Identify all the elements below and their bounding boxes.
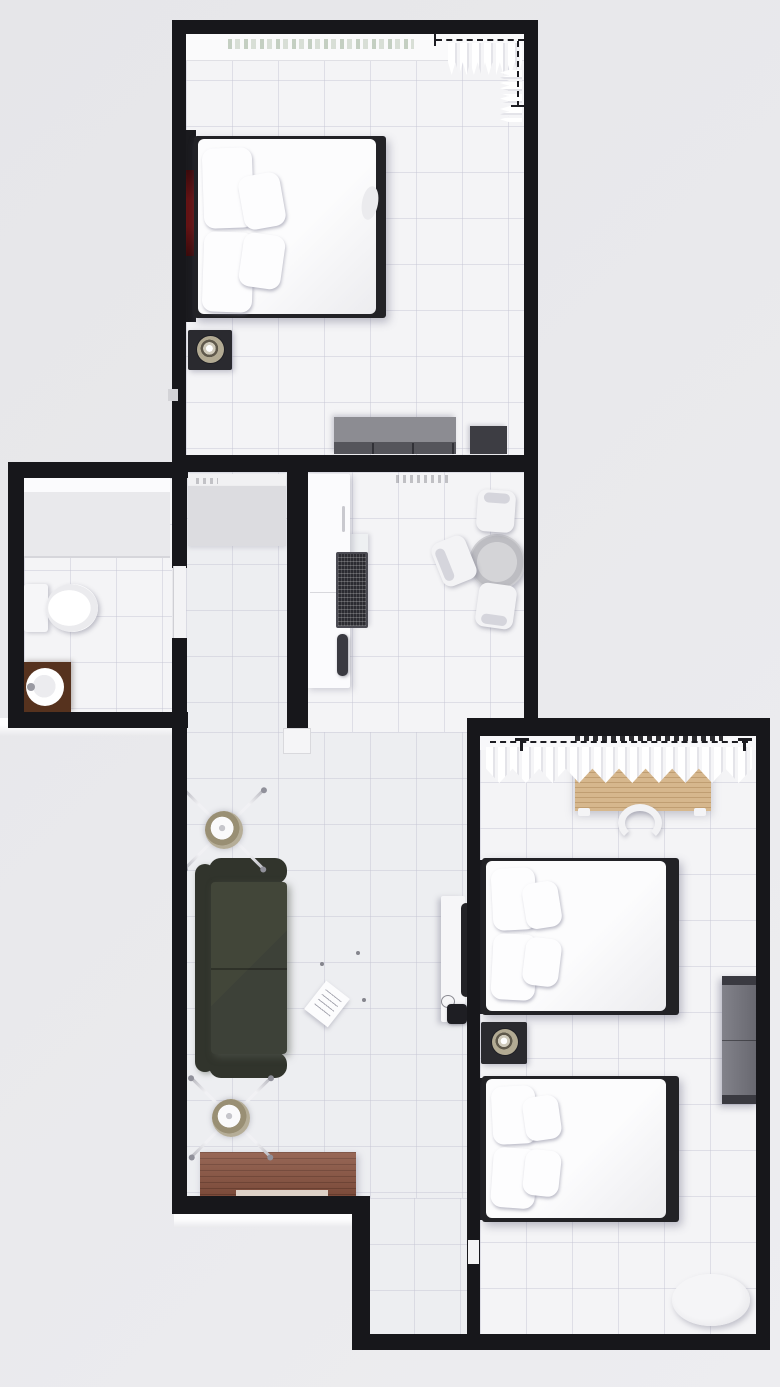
desk-foot — [694, 808, 706, 816]
kettle — [447, 1004, 467, 1024]
shower-shelf — [24, 478, 170, 492]
dining-chair — [476, 489, 517, 534]
wall — [756, 718, 770, 1350]
wall — [172, 20, 186, 472]
wall — [352, 1334, 480, 1350]
wall — [172, 462, 187, 568]
closet-marks — [196, 478, 218, 484]
ceiling-fan — [175, 1062, 287, 1174]
cushion-seam — [211, 968, 287, 970]
wall — [172, 1196, 370, 1214]
rod-end-tick — [434, 33, 436, 46]
rod-bracket — [520, 738, 523, 751]
desk-foot — [578, 808, 590, 816]
sofa — [195, 858, 289, 1078]
wardrobe-cap — [722, 1095, 759, 1104]
window-sill-marks — [228, 39, 414, 49]
pouf — [672, 1274, 750, 1326]
corridor-floor — [368, 1198, 468, 1336]
wall-notch — [168, 389, 178, 401]
floor-speck — [362, 998, 366, 1002]
rod-bracket — [743, 738, 746, 751]
bedroom-door-gap — [468, 1240, 479, 1264]
curtain-rod-dashed-vertical — [517, 41, 519, 107]
pillow — [521, 879, 564, 930]
pillow — [237, 231, 286, 290]
fan-hub — [212, 1099, 250, 1137]
sofa-seat — [211, 882, 287, 1054]
curtain-rod-dashed — [436, 39, 524, 41]
rod-end-tick — [511, 105, 524, 107]
pillow — [237, 171, 288, 231]
bathroom-door — [173, 566, 186, 638]
hallway-closet — [188, 474, 286, 546]
toilet-tank — [24, 584, 48, 632]
round-dining-table — [469, 534, 525, 590]
wardrobe-seam — [722, 1040, 759, 1041]
wall — [352, 1196, 370, 1350]
faucet — [337, 634, 348, 676]
wall — [467, 1334, 770, 1350]
dresser-drawer-seams — [334, 443, 456, 454]
fan-hub — [205, 811, 243, 849]
pillow — [521, 936, 563, 988]
curtain-rod-dashed — [490, 741, 748, 743]
wall — [8, 712, 188, 728]
floor-plan-render — [0, 0, 780, 1387]
table-lamp — [197, 336, 224, 363]
counter-handle — [342, 506, 345, 532]
wall — [8, 462, 188, 478]
wall — [287, 472, 308, 730]
wardrobe-cap — [722, 976, 759, 985]
floor-speck — [356, 951, 360, 955]
table-lamp — [492, 1029, 518, 1055]
kitchen-door — [283, 728, 311, 754]
exterior-ledge — [174, 1214, 364, 1227]
pillow — [521, 1094, 563, 1143]
wall — [172, 20, 538, 34]
wall — [172, 726, 187, 1214]
floor-speck — [320, 962, 324, 966]
dark-cabinet — [470, 426, 507, 454]
shower-area — [24, 478, 170, 558]
wall — [8, 462, 24, 728]
wall — [172, 455, 538, 472]
wall — [172, 638, 187, 728]
paper-lines — [312, 989, 341, 1019]
wall — [524, 20, 538, 472]
sink-faucet — [27, 683, 35, 691]
cooktop — [336, 552, 368, 628]
dining-chair — [474, 582, 518, 631]
dresser — [334, 417, 456, 454]
wall — [524, 472, 538, 736]
kitchen-hood-label — [396, 475, 448, 483]
wardrobe — [722, 976, 759, 1104]
desk-chair — [618, 804, 662, 842]
toilet-bowl — [46, 584, 98, 632]
wall — [467, 718, 770, 736]
pillow — [522, 1148, 563, 1198]
